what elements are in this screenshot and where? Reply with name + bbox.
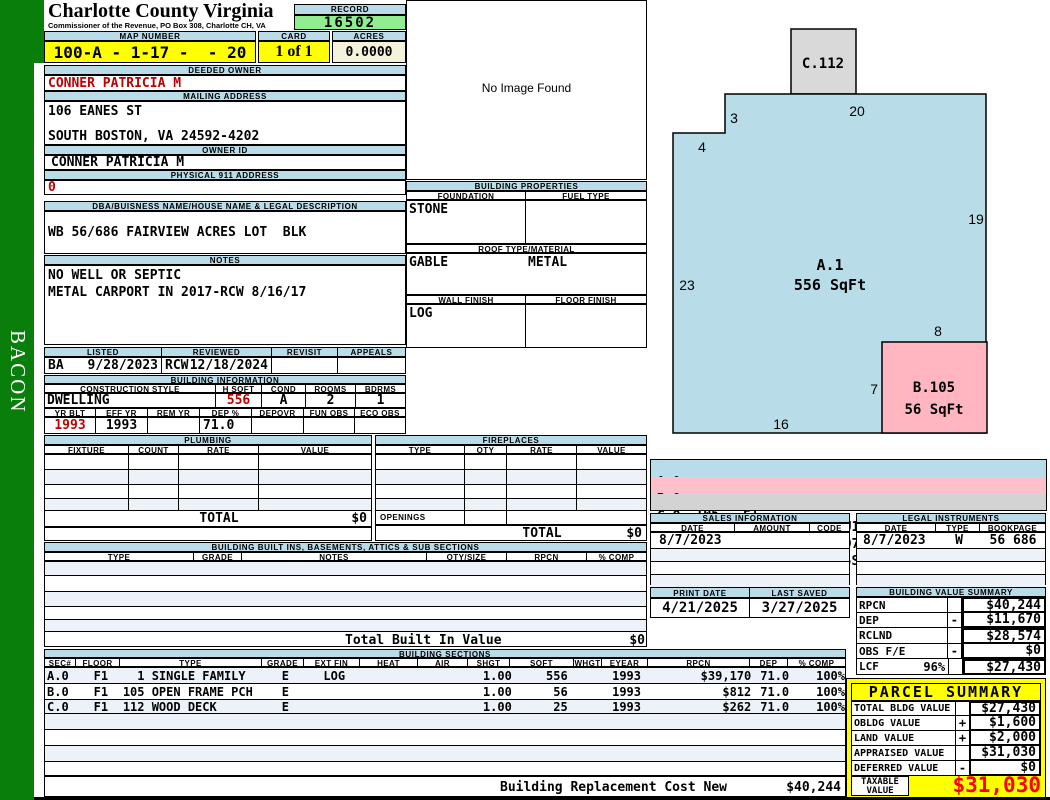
fireplaces-col-rate: RATE: [507, 445, 577, 454]
bs-col-dep: DEP: [750, 658, 788, 667]
built-ins-total-label: Total Built In Value: [345, 633, 502, 648]
card-label: CARD: [258, 31, 330, 41]
sidebar-vertical-label: BACON: [5, 330, 30, 414]
legal-row-1: 8/7/2023 W 56 686: [857, 533, 1045, 549]
deeded-owner-label: DEEDED OWNER: [44, 65, 406, 75]
reviewed-date: 12/18/2024: [190, 358, 268, 373]
dep-label: DEP %: [200, 408, 252, 417]
funobs-label: FUN OBS: [304, 408, 355, 417]
roof-type-value: GABLE: [409, 255, 448, 270]
dim-notch: 3: [730, 110, 738, 126]
physical-address-label: PHYSICAL 911 ADDRESS: [44, 170, 406, 180]
mailing-address-label: MAILING ADDRESS: [44, 91, 406, 101]
bs-col-grade: GRADE: [262, 658, 304, 667]
physical-address-value: 0: [44, 180, 406, 195]
owner-id-label: OWNER ID: [44, 145, 406, 155]
notes-line2: METAL CARPORT IN 2017-RCW 8/16/17: [48, 285, 306, 300]
construction-style-value: DWELLING: [45, 394, 216, 407]
depovr-label: DEPOVR: [252, 408, 304, 417]
sales-row-1: 8/7/2023: [651, 533, 849, 549]
parcel-row-appraised: APPRAISED VALUE $31,030: [851, 746, 1041, 761]
roof-value-row: GABLE METAL: [406, 253, 647, 295]
plumbing-rows: [44, 454, 372, 510]
sketch-code-row-a: A.0 1 F1 SR16U7R8U19L20D3L4D23.: [651, 460, 1046, 477]
replacement-cost-value: $40,244: [745, 780, 841, 795]
value-summary-title: BUILDING VALUE SUMMARY: [856, 587, 1046, 597]
value-summary-row-dep: DEP - $11,670: [856, 613, 1046, 628]
map-number-label: MAP NUMBER: [44, 31, 256, 41]
record-value: 16502: [294, 15, 406, 30]
acres-value: 0.0000: [332, 41, 406, 63]
print-date-value: 4/21/2025: [651, 599, 750, 617]
legal-col-type: TYPE: [936, 523, 980, 532]
foundation-fuel-header-row: FOUNDATION FUEL TYPE: [406, 191, 647, 200]
wall-finish-label: WALL FINISH: [406, 295, 526, 304]
depovr-value: [252, 418, 304, 433]
reviewed-by: RCW: [165, 358, 188, 373]
yrblt-value: 1993: [45, 418, 96, 433]
parcel-summary-table: TOTAL BLDG VALUE $27,430 OBLDG VALUE + $…: [851, 701, 1041, 776]
building-sketch: C.112 20 3 4 19 23 A.1 556 SqFt 8 7 B.10…: [650, 0, 1048, 456]
record-label: RECORD: [294, 4, 406, 15]
dim-left: 23: [679, 277, 695, 293]
last-saved-value: 3/27/2025: [750, 599, 849, 617]
building-sections-empty-rows: [44, 713, 846, 776]
plumbing-total-row: TOTAL $0: [44, 510, 372, 527]
sales-col-amount: AMOUNT: [735, 523, 810, 532]
revisit-label: REVISIT: [272, 347, 338, 357]
built-ins-total-value: $0: [585, 633, 645, 648]
fireplaces-col-type: TYPE: [375, 445, 465, 454]
dates-header-row: PRINT DATE LAST SAVED: [650, 587, 850, 598]
bs-col-rpcn: RPCN: [648, 658, 750, 667]
fireplaces-col-qty: QTY: [465, 445, 507, 454]
fireplaces-title: FIREPLACES: [375, 435, 647, 445]
replacement-cost-label: Building Replacement Cost New: [500, 780, 727, 795]
dba-label: DBA/BUISNESS NAME/HOUSE NAME & LEGAL DES…: [44, 201, 406, 211]
dim-step: 4: [698, 139, 706, 155]
dep-value: 71.0: [200, 418, 252, 433]
bs-col-eyear: EYEAR: [602, 658, 648, 667]
value-summary-row-obs: OBS F/E - $0: [856, 644, 1046, 659]
building-section-row-a: A.0 F1 1 SINGLE FAMILY E LOG 1.00 556 19…: [45, 668, 845, 684]
notes-box: NO WELL OR SEPTIC METAL CARPORT IN 2017-…: [44, 265, 406, 345]
roof-label: ROOF TYPE/MATERIAL: [406, 244, 647, 253]
sketch-deck-label: C.112: [802, 56, 844, 72]
dim-right: 19: [968, 211, 984, 227]
value-summary-row-rpcn: RPCN $40,244: [856, 597, 1046, 613]
sketch-main-sqft: 556 SqFt: [794, 276, 866, 294]
yrblt-label: YR BLT: [44, 408, 96, 417]
legal-col-bookpage: BOOKPAGE: [980, 523, 1046, 532]
building-properties-title: BUILDING PROPERTIES: [406, 181, 647, 191]
dim-porch-left: 7: [870, 381, 878, 397]
wall-floor-header-row: WALL FINISH FLOOR FINISH: [406, 295, 647, 304]
remyr-label: REM YR: [148, 408, 200, 417]
built-ins-col-notes: NOTES: [242, 552, 427, 561]
building-info-header-row2: YR BLT EFF YR REM YR DEP % DEPOVR FUN OB…: [44, 408, 406, 417]
plumbing-title: PLUMBING: [44, 435, 372, 445]
built-ins-rows: [44, 561, 647, 631]
commissioner-line: Commissioner of the Revenue, PO Box 308,…: [48, 21, 292, 30]
dates-value-row: 4/21/2025 3/27/2025: [650, 598, 850, 618]
plumbing-header-row: FIXTURE COUNT RATE VALUE: [44, 445, 372, 454]
visit-value-row: BA 9/28/2023 RCW 12/18/2024: [44, 357, 406, 374]
floor-finish-label: FLOOR FINISH: [526, 295, 647, 304]
construction-style-label: CONSTRUCTION STYLE: [44, 384, 216, 393]
dim-bottom: 16: [773, 416, 789, 432]
built-ins-col-grade: GRADE: [194, 552, 242, 561]
bs-col-heat: HEAT: [360, 658, 418, 667]
dim-top: 20: [849, 103, 865, 119]
county-title: Charlotte County Virginia: [48, 2, 292, 21]
rooms-value: 2: [306, 394, 356, 407]
wall-finish-value: LOG: [407, 305, 526, 347]
county-title-block: Charlotte County Virginia Commissioner o…: [48, 2, 292, 30]
sketch-codes: A.0 1 F1 SR16U7R8U19L20D3L4D23. B.0 105 …: [650, 459, 1047, 511]
plumbing-col-value: VALUE: [259, 445, 372, 454]
sketch-main-label: A.1: [816, 256, 843, 274]
sketch-porch-label: B.105: [913, 380, 955, 396]
print-date-label: PRINT DATE: [650, 587, 750, 598]
floor-finish-value: [526, 305, 646, 347]
fireplaces-header-row: TYPE QTY RATE VALUE: [375, 445, 647, 454]
building-section-row-c: C.0 F1 112 WOOD DECK E 1.00 25 1993 $262…: [45, 700, 845, 714]
effyr-label: EFF YR: [96, 408, 148, 417]
listed-date: 9/28/2023: [88, 358, 158, 373]
built-ins-col-rpcn: RPCN: [507, 552, 587, 561]
built-ins-total-row: Total Built In Value $0: [44, 631, 647, 647]
fireplaces-rows: [375, 454, 647, 510]
listed-label: LISTED: [44, 347, 162, 357]
building-sections-body: A.0 F1 1 SINGLE FAMILY E LOG 1.00 556 19…: [44, 667, 846, 713]
bs-col-type: TYPE: [120, 658, 262, 667]
plumbing-empty-strip: [44, 527, 372, 541]
sidebar-green-bar: BACON: [0, 0, 34, 800]
visit-header-row: LISTED REVIEWED REVISIT APPEALS: [44, 347, 406, 357]
fireplaces-col-value: VALUE: [577, 445, 647, 454]
bdrms-value: 1: [356, 394, 405, 407]
parcel-row-total-bldg: TOTAL BLDG VALUE $27,430: [851, 701, 1041, 716]
built-ins-col-comp: % COMP: [587, 552, 647, 561]
notes-label: NOTES: [44, 255, 406, 265]
card-value: 1 of 1: [258, 41, 330, 63]
roof-material-value: METAL: [528, 255, 567, 270]
revisit-value: [272, 358, 338, 373]
built-ins-col-qtysize: QTY/SIZE: [427, 552, 507, 561]
reviewed-label: REVIEWED: [162, 347, 272, 357]
building-sections-title: BUILDING SECTIONS: [44, 649, 846, 658]
notes-line1: NO WELL OR SEPTIC: [48, 268, 181, 283]
plumbing-total-value: $0: [259, 511, 371, 526]
dba-value: WB 56/686 FAIRVIEW ACRES LOT BLK: [44, 211, 406, 254]
bs-col-air: AIR: [418, 658, 468, 667]
map-number-value: 100-A - 1-17 - - 20: [44, 41, 256, 63]
plumbing-col-fixture: FIXTURE: [44, 445, 129, 454]
legal-title: LEGAL INSTRUMENTS: [856, 513, 1046, 523]
fireplaces-total-value: $0: [577, 526, 646, 540]
cond-label: COND: [262, 384, 306, 393]
fireplaces-total-label: TOTAL: [507, 526, 577, 540]
listed-by: BA: [48, 358, 64, 373]
bs-col-extfin: EXT FIN: [304, 658, 360, 667]
parcel-summary: PARCEL SUMMARY TOTAL BLDG VALUE $27,430 …: [846, 678, 1046, 798]
value-summary-table: RPCN $40,244 DEP - $11,670 RCLND $28,574…: [856, 597, 1046, 675]
building-sections-header-row: SEC# FLOOR TYPE GRADE EXT FIN HEAT AIR S…: [44, 658, 846, 667]
bdrms-label: BDRMS: [356, 384, 406, 393]
hsqft-value: 556: [216, 394, 262, 407]
legal-col-date: DATE: [856, 523, 936, 532]
mailing-line1: 106 EANES ST: [48, 104, 142, 119]
bs-col-sqft: SQFT: [510, 658, 574, 667]
sales-col-date: DATE: [650, 523, 735, 532]
mailing-address-box: 106 EANES ST SOUTH BOSTON, VA 24592-4202: [44, 101, 406, 145]
sales-title: SALES INFORMATION: [650, 513, 850, 523]
building-info-header-row1: CONSTRUCTION STYLE H SQFT COND ROOMS BDR…: [44, 384, 406, 393]
taxable-value: $31,030: [911, 773, 1041, 797]
built-ins-header-row: TYPE GRADE NOTES QTY/SIZE RPCN % COMP: [44, 552, 647, 561]
building-info-value-row1: DWELLING 556 A 2 1: [44, 393, 406, 408]
sales-body: 8/7/2023: [650, 532, 850, 585]
building-info-title: BUILDING INFORMATION: [44, 375, 406, 384]
cond-value: A: [262, 394, 306, 407]
building-info-value-row2: 1993 1993 71.0: [44, 417, 406, 434]
parcel-row-obldg: OBLDG VALUE + $1,600: [851, 716, 1041, 731]
value-summary-row-lcf: LCF96% $27,430: [856, 659, 1046, 675]
property-record-card: { "sidebar": {"vertical_text": "BACON"},…: [0, 0, 1050, 800]
value-summary-row-rclnd: RCLND $28,574: [856, 628, 1046, 644]
sidebar-top-corner: [34, 0, 44, 63]
bs-col-shgt: SHGT: [468, 658, 510, 667]
deeded-owner-value: CONNER PATRICIA M: [44, 75, 406, 91]
mailing-line2: SOUTH BOSTON, VA 24592-4202: [48, 129, 259, 144]
ecoobs-label: ECO OBS: [355, 408, 406, 417]
owner-id-value: CONNER PATRICIA M: [44, 155, 406, 170]
last-saved-label: LAST SAVED: [750, 587, 850, 598]
wall-floor-value-row: LOG: [406, 304, 647, 348]
acres-label: ACRES: [332, 31, 406, 41]
fireplaces-openings-label: OPENINGS: [376, 511, 465, 524]
rooms-label: ROOMS: [306, 384, 356, 393]
appeals-value: [338, 358, 405, 373]
bs-col-floor: FLOOR: [76, 658, 120, 667]
bs-col-sec: SEC#: [44, 658, 76, 667]
ecoobs-value: [355, 418, 405, 433]
plumbing-total-label: TOTAL: [179, 511, 259, 526]
sales-header-row: DATE AMOUNT CODE: [650, 523, 850, 532]
property-photo-box: No Image Found: [406, 0, 647, 180]
parcel-summary-title: PARCEL SUMMARY: [851, 683, 1041, 701]
funobs-value: [304, 418, 355, 433]
fuel-label: FUEL TYPE: [526, 191, 647, 200]
building-section-row-b: B.0 F1 105 OPEN FRAME PCH E 1.00 56 1993…: [45, 684, 845, 700]
fireplaces-total-row: TOTAL $0: [375, 525, 647, 541]
remyr-value: [148, 418, 200, 433]
plumbing-col-count: COUNT: [129, 445, 179, 454]
dim-porch-top: 8: [934, 323, 942, 339]
taxable-value-label: TAXABLE VALUE: [851, 776, 909, 796]
sketch-code-row-c: C.0 112 F1 U23R4U3R5SU5R5D5L5.: [651, 494, 1046, 510]
bs-col-whgt: WHGT: [574, 658, 602, 667]
sketch-code-row-b: B.0 105 F1 R16SU7R8D7L8.: [651, 477, 1046, 494]
sketch-porch-sqft: 56 SqFt: [904, 402, 963, 418]
legal-body: 8/7/2023 W 56 686: [856, 532, 1046, 585]
fireplaces-openings-row: OPENINGS: [375, 510, 647, 525]
bs-col-comp: % COMP: [788, 658, 846, 667]
legal-header-row: DATE TYPE BOOKPAGE: [856, 523, 1046, 532]
sales-col-code: CODE: [810, 523, 850, 532]
effyr-value: 1993: [96, 418, 148, 433]
foundation-label: FOUNDATION: [406, 191, 526, 200]
appeals-label: APPEALS: [338, 347, 406, 357]
parcel-row-land: LAND VALUE + $2,000: [851, 731, 1041, 746]
hsqft-label: H SQFT: [216, 384, 262, 393]
foundation-value: STONE: [407, 201, 526, 243]
built-ins-col-type: TYPE: [44, 552, 194, 561]
plumbing-col-rate: RATE: [179, 445, 259, 454]
replacement-cost-row: Building Replacement Cost New $40,244: [44, 776, 846, 797]
fuel-value: [526, 201, 646, 243]
built-ins-title: BUILDING BUILT INS, BASEMENTS, ATTICS & …: [44, 542, 647, 552]
no-image-text: No Image Found: [407, 81, 646, 95]
foundation-fuel-value-row: STONE: [406, 200, 647, 244]
